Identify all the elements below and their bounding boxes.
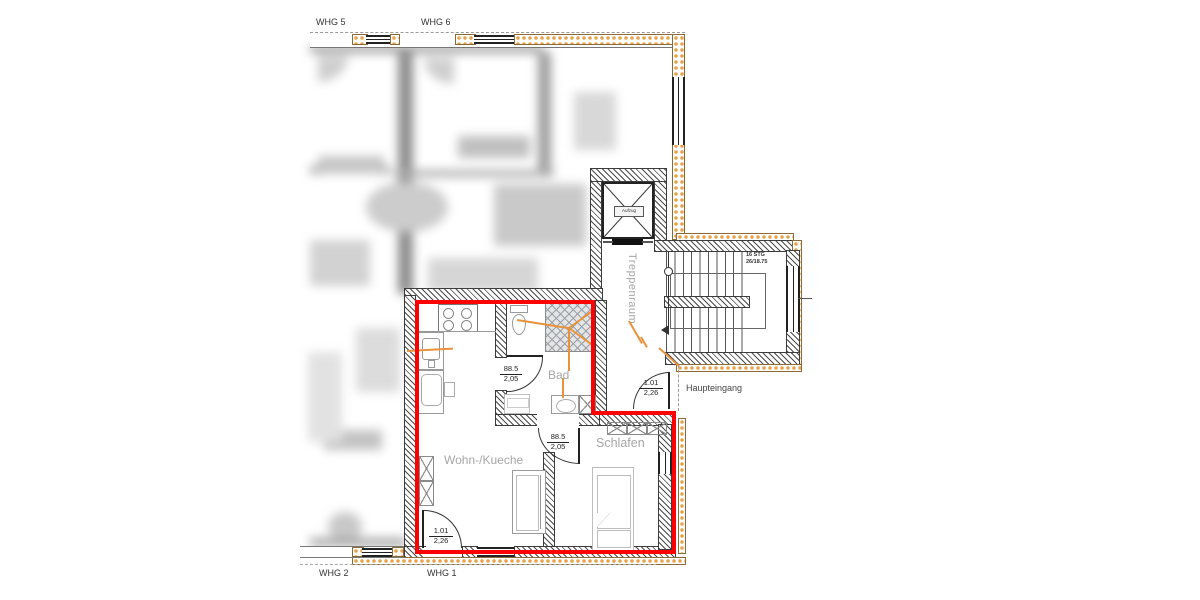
blanket-fold [597, 513, 610, 527]
entrance-door-leaf [668, 372, 670, 409]
insulation-band [390, 34, 400, 45]
stair-landing [664, 296, 750, 308]
bed-foot [597, 530, 631, 548]
window [366, 35, 392, 44]
elevator-shaft: Aufzug [602, 182, 654, 239]
dimension-balcony-door: 1.01 2,26 [429, 527, 453, 545]
stair-walk-arrow [661, 325, 669, 335]
red-outline-left [415, 300, 419, 554]
bedroom-right-wall [658, 424, 672, 550]
basin [556, 399, 576, 413]
kitchen-cabinet [444, 382, 455, 397]
bedroom-door-leaf [578, 428, 580, 464]
red-outline-right [672, 411, 676, 554]
unit-label-whg6: WHG 6 [421, 17, 451, 27]
room-label-schlafen: Schlafen [596, 436, 645, 450]
stair-walking-line [668, 252, 669, 330]
bath-door-leaf [507, 355, 543, 357]
sofa [512, 470, 546, 534]
insulation-band [392, 547, 404, 557]
dimension-entrance-door: 1.01 2,26 [639, 379, 663, 397]
sofa-back [540, 475, 541, 529]
stove [438, 304, 478, 332]
door-opening [537, 414, 579, 426]
red-outline-top [415, 300, 595, 304]
window [658, 452, 672, 474]
burner [443, 320, 454, 331]
wall-segment [590, 181, 602, 302]
balcony-door-leaf [422, 510, 424, 548]
elevator-label: Aufzug [614, 206, 644, 217]
unit-label-whg1: WHG 1 [427, 568, 457, 578]
elevator-door [612, 239, 643, 245]
red-outline-jog [591, 411, 676, 415]
window [786, 266, 800, 332]
burner [461, 320, 472, 331]
fridge-inner [421, 374, 442, 406]
insulation-band [514, 34, 674, 45]
entrance-dashed-line [678, 365, 680, 411]
boundary-dashed-line [300, 564, 656, 566]
unit-label-whg5: WHG 5 [316, 17, 346, 27]
toilet-tank [510, 305, 528, 313]
stair-top-wall [654, 240, 800, 252]
wardrobe [419, 456, 434, 481]
sofa-seat [516, 475, 539, 531]
washbasin [551, 395, 579, 414]
blurred-left-apartment [300, 300, 412, 562]
niche-shelf [507, 398, 529, 408]
floor-plan-canvas: Aufzug 16 STG 26/18.75 Treppenraum [0, 0, 1200, 600]
utility-line [568, 327, 570, 371]
room-label-treppenraum: Treppenraum [626, 253, 638, 324]
elevator-door-frame [603, 241, 613, 243]
fridge [418, 370, 444, 414]
elevator-door-frame [642, 241, 653, 243]
burner [461, 308, 472, 319]
stair-note: 16 STG 26/18.75 [746, 252, 767, 265]
faucet [428, 360, 435, 368]
dimension-bedroom-door: 88.5 2,05 [547, 433, 569, 451]
burner [443, 308, 454, 319]
window [362, 548, 394, 557]
bath-niche [504, 394, 530, 414]
room-label-bad: Bad [548, 368, 569, 382]
insulation-band [678, 418, 686, 554]
toilet-bowl [512, 314, 526, 335]
window [474, 35, 516, 44]
insulation-band [455, 34, 476, 45]
room-label-wohn-kueche: Wohn-/Kueche [444, 453, 523, 467]
dimension-bath-door: 88.5 2,05 [500, 365, 522, 383]
insulation-band [676, 364, 802, 372]
wall-segment [595, 300, 607, 414]
wardrobe [607, 422, 627, 435]
wall-segment [495, 300, 507, 358]
wall-segment [590, 168, 667, 182]
wardrobe [627, 422, 647, 435]
red-outline-bath-right [591, 300, 595, 415]
stair-walk-start-circle [664, 267, 673, 276]
bed [592, 467, 634, 551]
wardrobe [647, 422, 667, 435]
wall-segment [654, 181, 667, 242]
red-outline-bottom [415, 550, 676, 554]
unit-label-whg2: WHG 2 [319, 568, 349, 578]
window-tick [798, 298, 812, 299]
wardrobe [419, 481, 434, 506]
entrance-label: Haupteingang [686, 383, 742, 393]
window [672, 77, 685, 145]
